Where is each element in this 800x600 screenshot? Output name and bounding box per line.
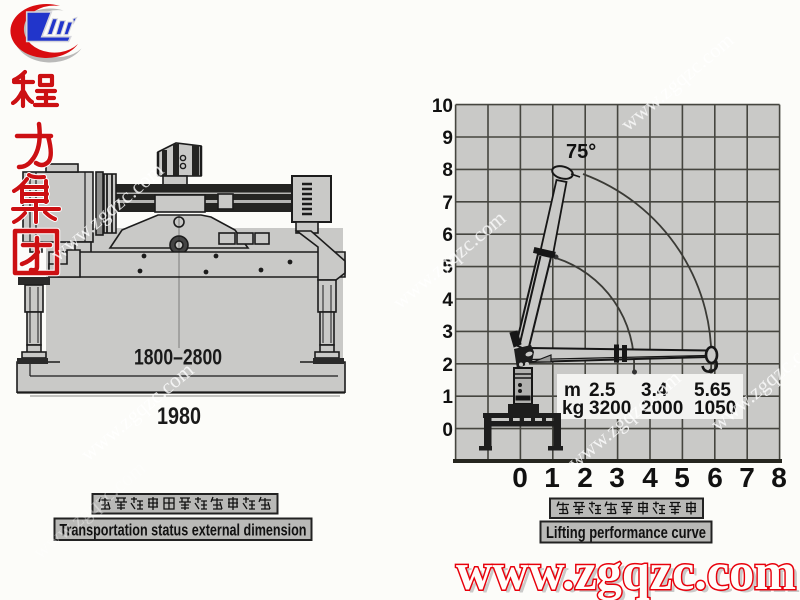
svg-text:1: 1 <box>442 387 453 408</box>
svg-text:75°: 75° <box>566 141 596 163</box>
svg-text:0: 0 <box>442 420 453 441</box>
svg-text:0: 0 <box>512 462 528 493</box>
svg-text:6: 6 <box>707 462 723 493</box>
svg-text:kg: kg <box>562 398 584 419</box>
svg-text:4: 4 <box>442 290 453 311</box>
svg-text:5: 5 <box>674 462 690 493</box>
svg-text:1: 1 <box>544 462 560 493</box>
svg-text:8: 8 <box>771 462 787 493</box>
svg-text:10: 10 <box>432 96 453 117</box>
svg-text:1980: 1980 <box>157 403 201 430</box>
svg-text:Lifting performance curve: Lifting performance curve <box>546 523 706 542</box>
svg-text:9: 9 <box>442 128 453 149</box>
svg-text:2: 2 <box>442 355 453 376</box>
svg-text:3: 3 <box>609 462 625 493</box>
svg-text:www.zgqzc.com: www.zgqzc.com <box>456 544 796 600</box>
svg-text:4: 4 <box>642 462 658 493</box>
svg-text:7: 7 <box>739 462 755 493</box>
svg-text:8: 8 <box>442 160 453 181</box>
svg-text:7: 7 <box>442 193 453 214</box>
svg-text:3: 3 <box>442 322 453 343</box>
svg-text:Transportation status externa: Transportation status external dimension <box>60 521 307 540</box>
